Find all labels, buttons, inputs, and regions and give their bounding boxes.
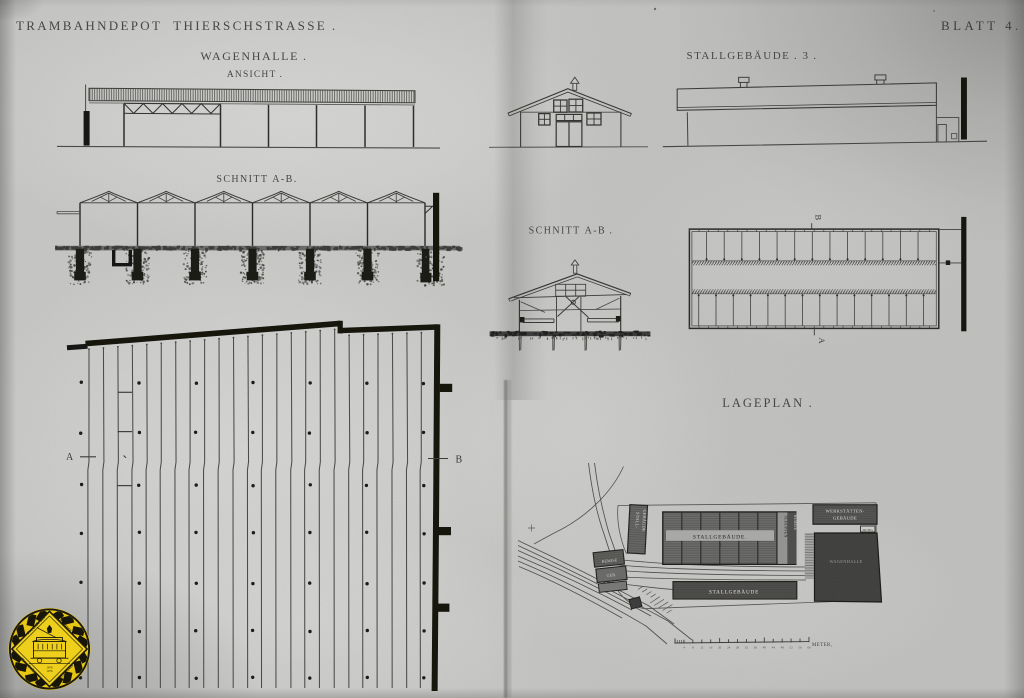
svg-text:BLATT 4.: BLATT 4. [941,18,1022,33]
svg-text:B: B [456,455,463,466]
svg-text:1976: 1976 [46,669,53,673]
svg-text:STALLGEBÄUDE . 3 .: STALLGEBÄUDE . 3 . [686,50,817,62]
svg-text:56: 56 [798,646,802,650]
svg-text:B: B [814,215,824,221]
svg-text:ANSICHT .: ANSICHT . [227,70,283,80]
svg-text:LAGEPLAN .: LAGEPLAN . [722,396,814,410]
svg-text:16: 16 [709,646,713,650]
svg-text:36: 36 [754,646,758,650]
svg-text:SCHNITT A-B.: SCHNITT A-B. [216,174,297,185]
svg-text:WAGENHALLE .: WAGENHALLE . [200,49,307,63]
svg-text:24: 24 [727,646,731,650]
svg-text:WERKSTÄTTEN-: WERKSTÄTTEN- [825,508,864,513]
svg-text:48: 48 [781,646,785,650]
svg-text:12: 12 [700,646,704,650]
svg-text:GEB.: GEB. [606,572,616,578]
svg-text:REMISE: REMISE [793,515,798,531]
svg-text:A: A [817,338,827,345]
svg-text:GEBÄUDE: GEBÄUDE [833,515,857,520]
svg-text:DUNG: DUNG [863,528,874,532]
svg-text:STALLGEBÄUDE.: STALLGEBÄUDE. [693,533,747,540]
svg-text:STALLGEBÄUDE: STALLGEBÄUDE [709,588,759,595]
svg-text:40: 40 [763,646,767,650]
svg-text:TRAMBAHNDEPOT THIERSCHSTRASSE: TRAMBAHNDEPOT THIERSCHSTRASSE . [16,18,337,33]
svg-text:44: 44 [772,646,776,650]
svg-text:20: 20 [718,646,722,650]
svg-text:SCHNITT A-B .: SCHNITT A-B . [529,226,614,237]
svg-text:32: 32 [745,646,749,650]
svg-text:A: A [66,452,74,463]
svg-text:1.: 1. [719,543,722,548]
svg-text:28: 28 [736,646,740,650]
svg-text:WAGENHALLE: WAGENHALLE [829,559,862,564]
svg-text:60: 60 [807,646,811,650]
svg-text:52: 52 [790,646,794,650]
svg-text:METER,: METER, [812,643,832,648]
svg-text:STALL-: STALL- [634,512,640,529]
